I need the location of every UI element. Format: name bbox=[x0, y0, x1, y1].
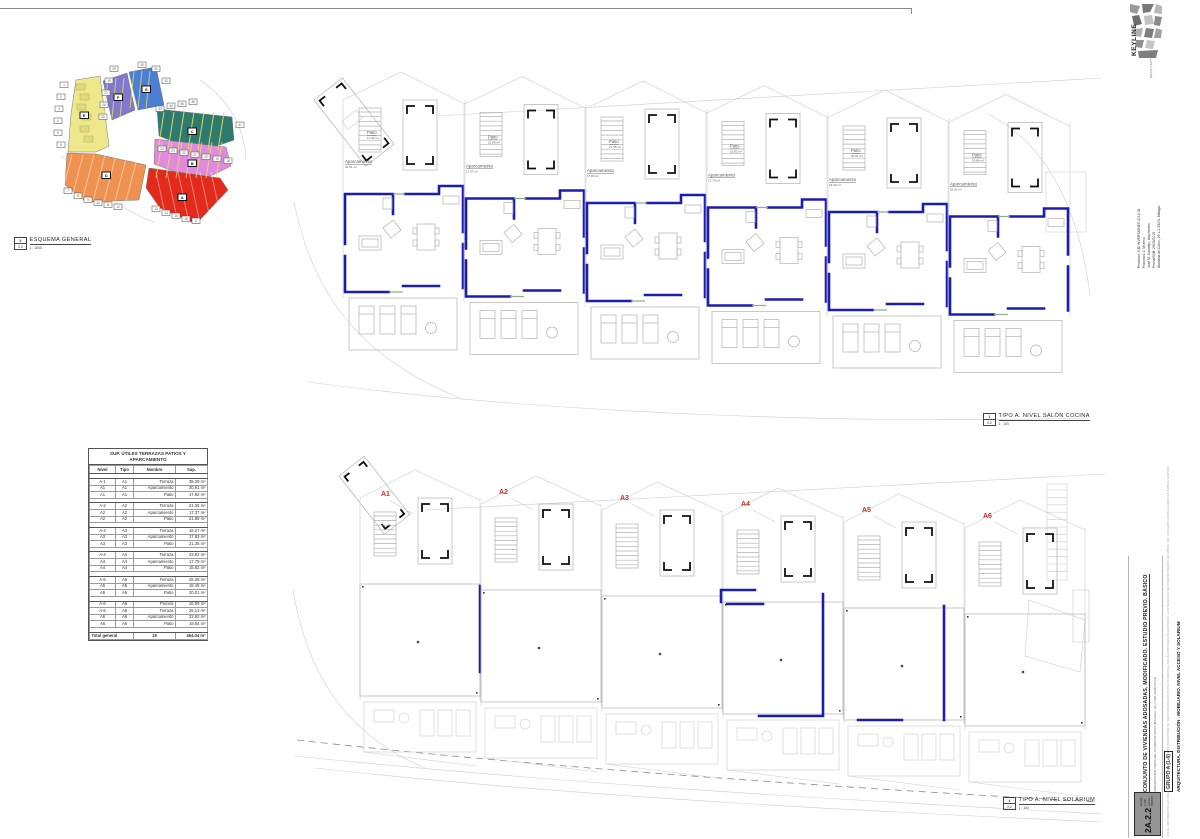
aparcamiento-label: Aparcamiento bbox=[466, 164, 494, 169]
solarium-unit-A1 bbox=[360, 470, 480, 766]
site-chip-6: 6 bbox=[57, 142, 65, 148]
site-chip-label: 9 bbox=[87, 198, 89, 202]
site-chip-label: 30 bbox=[140, 63, 144, 67]
site-chip-label: 1 bbox=[63, 83, 65, 87]
site-chip-24: 24 bbox=[158, 146, 166, 152]
area-table-header: Sup. bbox=[176, 466, 208, 474]
top-border-line bbox=[0, 8, 912, 9]
logo-tile-7 bbox=[1144, 28, 1154, 38]
site-chip-label: 32 bbox=[164, 79, 168, 83]
aparcamiento-area: 18.45 m² bbox=[829, 183, 841, 187]
site-zone-label: C bbox=[191, 130, 194, 134]
site-chip-11: 11 bbox=[104, 202, 112, 208]
unit-plan-A5: Patio20.01 m²Aparcamiento18.45 m² bbox=[827, 90, 949, 368]
furniture bbox=[964, 219, 1064, 273]
patio-area: 21.88 m² bbox=[488, 140, 500, 144]
area-row: A-3A3Terraza19.27 m² bbox=[90, 527, 208, 534]
site-chip-21: 21 bbox=[191, 152, 199, 158]
logo-tile-2 bbox=[1154, 4, 1162, 14]
sheet-code: 2A.2.2 bbox=[1143, 808, 1153, 833]
area-row: A3A3Aparcamiento17.83 m² bbox=[90, 534, 208, 541]
area-row: A5A5Aparcamiento18.45 m² bbox=[90, 583, 208, 590]
site-chip-label: 3 bbox=[58, 107, 60, 111]
area-row: A6A6Aparcamiento32.92 m² bbox=[90, 614, 208, 621]
patio-label: Patio bbox=[488, 135, 498, 140]
patio-label: Patio bbox=[730, 144, 740, 149]
sheet-number-box: 2A.2.2 Escala 1:100 Fecha 05/2015 bbox=[1134, 792, 1161, 836]
site-chip-32: 32 bbox=[162, 78, 170, 84]
site-zone-label: D bbox=[105, 174, 108, 178]
site-chip-label: 10 bbox=[96, 201, 100, 205]
drawing-ref-sheet: 2.2 bbox=[984, 420, 995, 425]
aparcamiento-label: Aparcamiento bbox=[829, 177, 857, 182]
plan-top-caption: 1 2.2 TIPO A. NIVEL SALÓN COCINA 1 : 100 bbox=[983, 413, 1090, 426]
plan-top-scale: 1 : 100 bbox=[999, 422, 1090, 426]
project-block: CONJUNTO DE VIVIENDAS ADOSADAS, MODIFICA… bbox=[1134, 556, 1181, 792]
site-chip-17: 17 bbox=[192, 218, 200, 224]
patio-area: 15.82 m² bbox=[730, 149, 742, 153]
area-row: A4A4Aparcamiento17.79 m² bbox=[90, 559, 208, 566]
site-chip-15: 15 bbox=[172, 213, 180, 219]
drawing-ref: 4 2.2 bbox=[1003, 797, 1016, 810]
site-chip-34: 34 bbox=[167, 103, 175, 109]
area-row: A1A1Patio17.92 m² bbox=[90, 492, 208, 499]
site-chip-label: 35 bbox=[180, 102, 184, 106]
area-row: A-6A6Terraza26.13 m² bbox=[90, 608, 208, 615]
aparcamiento-area: 17.37 m² bbox=[466, 170, 478, 174]
site-chip-16: 16 bbox=[182, 216, 190, 222]
area-table-grid: NivelTipoNombreSup.A-1A1Terraza35.29 m²A… bbox=[89, 465, 208, 639]
site-zone-box-G: G bbox=[142, 86, 151, 93]
site-plan-title: ESQUEMA GENERAL bbox=[30, 237, 92, 245]
furniture bbox=[601, 205, 701, 259]
solarium-unit-A3: A3 bbox=[602, 482, 722, 778]
site-chip-label: 12 bbox=[116, 205, 120, 209]
site-chip-label: 19 bbox=[215, 157, 219, 161]
logo-tile-8 bbox=[1154, 28, 1162, 38]
site-chip-9: 9 bbox=[84, 197, 92, 203]
site-chip-label: 18 bbox=[226, 159, 230, 163]
logo-tile-1 bbox=[1142, 4, 1154, 13]
patio-area: 21.35 m² bbox=[609, 145, 621, 149]
site-chip-label: 24 bbox=[160, 147, 164, 151]
site-chip-label: 8 bbox=[77, 194, 79, 198]
site-chip-20: 20 bbox=[202, 154, 210, 160]
site-plan-caption: 3 2.2 ESQUEMA GENERAL 1 : 1000 bbox=[14, 237, 91, 250]
unit-plan-A4: Patio15.82 m²Aparcamiento17.79 m² bbox=[706, 86, 828, 364]
site-chip-30: 30 bbox=[138, 62, 146, 68]
aparcamiento-label: Aparcamiento bbox=[345, 159, 373, 164]
site-chip-19: 19 bbox=[213, 156, 221, 162]
site-chip-label: 25 bbox=[101, 115, 105, 119]
site-chip-label: 31 bbox=[154, 67, 158, 71]
area-table-header: Nivel bbox=[90, 466, 116, 474]
plan-salon-cocina-svg: Patio17.92 m²Aparcamiento30.91 m²Patio21… bbox=[288, 52, 1128, 432]
aparcamiento-area: 17.83 m² bbox=[587, 174, 599, 178]
logo-tile-4 bbox=[1144, 15, 1154, 25]
site-chip-10: 10 bbox=[94, 200, 102, 206]
aparcamiento-label: Aparcamiento bbox=[587, 168, 615, 173]
site-chip-label: 15 bbox=[174, 214, 178, 218]
site-chip-28: 28 bbox=[105, 78, 113, 84]
plan-bottom-title: TIPO A. NIVEL SOLARIUM bbox=[1019, 797, 1096, 805]
unit-label-A2: A2 bbox=[499, 489, 508, 496]
site-chip-label: 13 bbox=[154, 207, 158, 211]
unit-plan-A1: Patio17.92 m²Aparcamiento30.91 m² bbox=[343, 72, 465, 350]
site-zone-box-D: D bbox=[102, 172, 111, 179]
solarium-unit-A5: A5 bbox=[844, 494, 964, 790]
site-plan-scale: 1 : 1000 bbox=[30, 246, 92, 250]
aparcamiento-area: 30.91 m² bbox=[345, 165, 357, 169]
site-chip-27: 27 bbox=[102, 90, 110, 96]
site-chip-8: 8 bbox=[74, 193, 82, 199]
sheet-content-label: ARQUITECTURA. DISTRIBUCIÓN . MOBILIARIO.… bbox=[1176, 556, 1181, 792]
site-chip-35: 35 bbox=[178, 101, 186, 107]
site-chip-label: 23 bbox=[171, 149, 175, 153]
site-chip-1: 1 bbox=[60, 82, 68, 88]
site-chip-13: 13 bbox=[152, 206, 160, 212]
site-chip-22: 22 bbox=[180, 150, 188, 156]
titleblock-divider-left bbox=[1128, 556, 1129, 838]
area-row: A6A6Patio19.84 m² bbox=[90, 621, 208, 628]
area-row: A2A2Aparcamiento17.37 m² bbox=[90, 510, 208, 517]
patio-area: 19.84 m² bbox=[972, 158, 984, 162]
aparcamiento-area: 17.79 m² bbox=[708, 179, 720, 183]
furniture bbox=[359, 196, 459, 250]
aparcamiento-label: Aparcamiento bbox=[950, 182, 978, 187]
site-chip-label: 14 bbox=[164, 211, 168, 215]
site-zone-label: B bbox=[191, 162, 194, 166]
site-chip-label: 21 bbox=[193, 153, 197, 157]
tilted-patio-structure bbox=[314, 78, 394, 166]
site-chip-label: 33 bbox=[158, 107, 162, 111]
plan-bottom-scale: 1 : 100 bbox=[1019, 806, 1096, 810]
logo-tile-5 bbox=[1154, 16, 1162, 26]
sheet-meta-date: Fecha 05/2015 bbox=[1148, 795, 1155, 806]
neighbor-structures bbox=[988, 114, 1090, 296]
unit-label-A1: A1 bbox=[381, 491, 390, 498]
site-chip-label: 2 bbox=[60, 95, 62, 99]
unit-label-A5: A5 bbox=[862, 507, 871, 514]
site-chip-label: 29 bbox=[112, 67, 116, 71]
area-total-row: Total general19464.04 m² bbox=[90, 632, 208, 639]
site-chip-label: 28 bbox=[107, 79, 111, 83]
site-zone-box-A: A bbox=[178, 194, 187, 201]
logo-tile-11 bbox=[1138, 50, 1158, 58]
site-chip-26: 26 bbox=[100, 102, 108, 108]
site-chip-label: 26 bbox=[102, 103, 106, 107]
area-row: A-2A2Terraza21.35 m² bbox=[90, 503, 208, 510]
aparcamiento-area: 32.92 m² bbox=[950, 188, 962, 192]
site-chip-label: 36 bbox=[191, 100, 195, 104]
patio-label: Patio bbox=[851, 148, 861, 153]
site-zone-box-C: C bbox=[188, 128, 197, 135]
site-chip-36: 36 bbox=[189, 99, 197, 105]
site-chip-label: 22 bbox=[182, 151, 186, 155]
site-chip-4: 4 bbox=[54, 118, 62, 124]
unit-label-A4: A4 bbox=[741, 501, 750, 508]
area-row: A-5A5Terraza25.38 m² bbox=[90, 577, 208, 584]
site-chip-37: 37 bbox=[236, 122, 244, 128]
site-chip-label: 7 bbox=[67, 189, 69, 193]
logo-tile-10 bbox=[1145, 40, 1155, 49]
terrain-lines bbox=[295, 756, 1101, 822]
solarium-unit-A4: A4 bbox=[721, 488, 843, 784]
logo-tile-0 bbox=[1130, 4, 1140, 14]
site-chip-2: 2 bbox=[57, 94, 65, 100]
area-table-title: SUP. ÚTILES TERRAZAS PATIOS Y APARCAMIEN… bbox=[89, 449, 207, 465]
plan-top-title: TIPO A. NIVEL SALÓN COCINA bbox=[999, 413, 1090, 421]
area-table-header: Nombre bbox=[134, 466, 176, 474]
site-zone-label: E bbox=[83, 114, 86, 118]
patio-area: 17.92 m² bbox=[367, 136, 379, 140]
project-title: CONJUNTO DE VIVIENDAS ADOSADAS, MODIFICA… bbox=[1143, 574, 1150, 792]
site-chip-label: 6 bbox=[60, 143, 62, 147]
site-chip-25: 25 bbox=[99, 114, 107, 120]
site-chip-12: 12 bbox=[114, 204, 122, 210]
area-row: A3A3Patio21.35 m² bbox=[90, 541, 208, 548]
patio-area: 20.01 m² bbox=[851, 154, 863, 158]
area-table-header: Tipo bbox=[116, 466, 134, 474]
plan-bottom-caption: 4 2.2 TIPO A. NIVEL SOLARIUM 1 : 100 bbox=[1003, 797, 1095, 810]
furniture bbox=[480, 201, 580, 255]
keyline-logo-text: KEYLINE bbox=[1131, 24, 1138, 56]
site-context-lines bbox=[294, 78, 1102, 420]
patio-label: Patio bbox=[972, 153, 982, 158]
area-row: A-1A1Terraza35.29 m² bbox=[90, 478, 208, 485]
area-row: A-6A6Piscina16.59 m² bbox=[90, 601, 208, 608]
site-zone-label: G bbox=[145, 88, 148, 92]
site-zone-box-E: E bbox=[80, 112, 89, 119]
site-chip-label: 20 bbox=[204, 155, 208, 159]
site-chip-label: 5 bbox=[57, 131, 59, 135]
drawing-ref-sheet: 2.2 bbox=[15, 244, 26, 249]
area-table: SUP. ÚTILES TERRAZAS PATIOS Y APARCAMIEN… bbox=[88, 448, 208, 641]
aparcamiento-label: Aparcamiento bbox=[708, 173, 736, 178]
unit-plan-A2: Patio21.88 m²Aparcamiento17.37 m² bbox=[464, 77, 586, 355]
site-chip-18: 18 bbox=[224, 158, 232, 164]
site-chip-label: 11 bbox=[106, 203, 110, 207]
top-border-tick bbox=[911, 8, 912, 14]
site-chip-14: 14 bbox=[162, 210, 170, 216]
site-chip-29: 29 bbox=[110, 66, 118, 72]
furniture bbox=[722, 210, 822, 264]
patio-label: Patio bbox=[367, 130, 377, 135]
site-plan-svg: 1234562928272625303132333435363724232221… bbox=[50, 60, 250, 240]
area-row: A1A1Aparcamiento30.91 m² bbox=[90, 485, 208, 492]
drawing-ref: 1 2.2 bbox=[983, 413, 996, 426]
site-zone-box-B: B bbox=[188, 160, 197, 167]
site-chip-5: 5 bbox=[54, 130, 62, 136]
site-chip-label: 34 bbox=[169, 104, 173, 108]
unit-plan-A3: Patio21.35 m²Aparcamiento17.83 m² bbox=[585, 81, 707, 359]
contact-line-2: Alameda de Colón, 29 1-2 29001 Málaga bbox=[1157, 158, 1162, 268]
solarium-unit-A2: A2 bbox=[481, 476, 601, 772]
site-chip-label: 4 bbox=[57, 119, 59, 123]
site-chip-3: 3 bbox=[55, 106, 63, 112]
drawing-ref: 3 2.2 bbox=[14, 237, 27, 250]
promoter-block: Promotor: FJD INVERSIONES 2014 SL Franci… bbox=[1137, 158, 1163, 268]
site-chip-7: 7 bbox=[64, 188, 72, 194]
site-chip-23: 23 bbox=[169, 148, 177, 154]
drawing-ref-sheet: 2.2 bbox=[1004, 804, 1015, 809]
furniture bbox=[843, 214, 943, 268]
plan-solarium-svg: A1A2A3A4A5A6 bbox=[285, 450, 1105, 836]
unit-plan-A6: Patio19.84 m²Aparcamiento32.92 m² bbox=[948, 95, 1070, 373]
patio-label: Patio bbox=[609, 139, 619, 144]
site-chip-label: 27 bbox=[104, 91, 108, 95]
site-chip-33: 33 bbox=[156, 106, 164, 112]
area-row: A5A5Patio20.01 m² bbox=[90, 590, 208, 597]
tilted-patio-structure bbox=[339, 456, 410, 534]
area-row: A-4A4Terraza23.92 m² bbox=[90, 552, 208, 559]
site-chip-31: 31 bbox=[152, 66, 160, 72]
area-row: A4A4Patio15.82 m² bbox=[90, 565, 208, 572]
disclaimer-text: ESTE DOCUMENTO ES PROPIEDAD DEL AUTOR. Q… bbox=[1166, 96, 1170, 836]
unit-label-A3: A3 bbox=[620, 495, 629, 502]
site-chip-label: 37 bbox=[238, 123, 242, 127]
site-zone-box-F: F bbox=[114, 94, 123, 101]
unit-label-A6: A6 bbox=[983, 513, 992, 520]
logo-subtext: ARQUITECTOS bbox=[1149, 53, 1153, 78]
area-row: A2A2Patio21.88 m² bbox=[90, 516, 208, 523]
site-chip-label: 16 bbox=[184, 217, 188, 221]
site-zone-label: A bbox=[181, 196, 184, 200]
site-chip-label: 17 bbox=[194, 219, 198, 223]
